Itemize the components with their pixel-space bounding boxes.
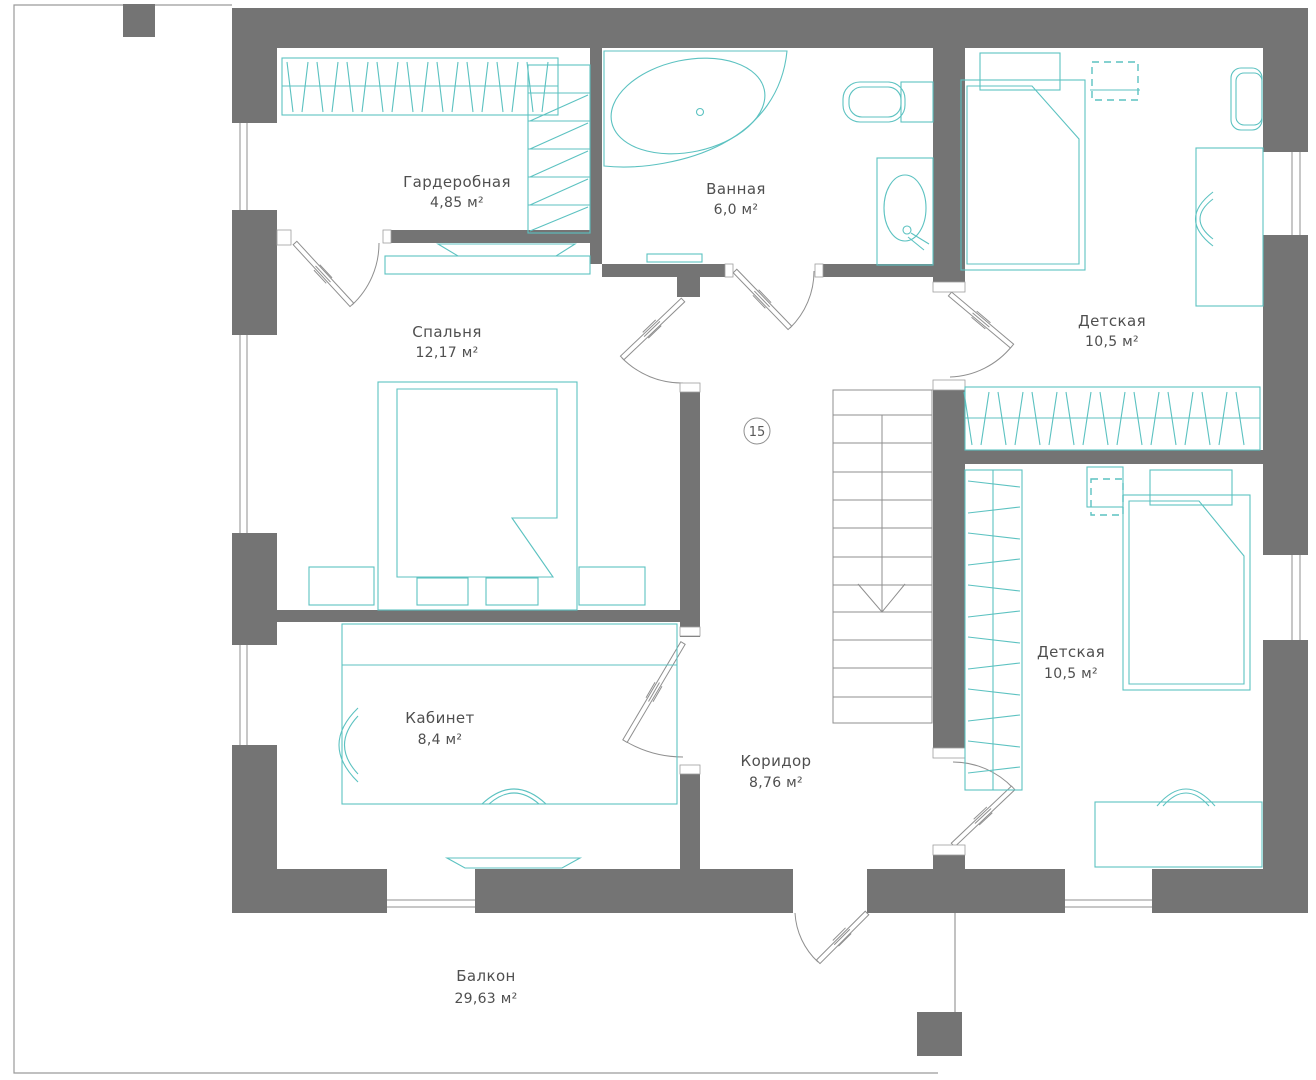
sink-faucet [903, 226, 911, 234]
work-table [342, 624, 677, 804]
door-bedroom [293, 241, 379, 306]
window-right-1 [1292, 152, 1300, 235]
nightstand-dashed [1090, 62, 1140, 100]
door-balcony [795, 911, 869, 963]
closet-band [964, 387, 1260, 450]
svg-text:8,4 м²: 8,4 м² [418, 732, 463, 748]
svg-text:Спальня: Спальня [412, 323, 482, 341]
pillow [417, 578, 468, 605]
window-right-2 [1292, 555, 1300, 640]
door-hall [620, 298, 684, 383]
desk-chair [1196, 192, 1214, 246]
svg-text:Гардеробная: Гардеробная [403, 173, 511, 191]
staircase [833, 390, 932, 723]
svg-text:6,0 м²: 6,0 м² [714, 202, 759, 218]
double-bed [378, 382, 577, 610]
svg-text:Ванная: Ванная [706, 180, 766, 198]
level-marker: 15 [744, 418, 770, 444]
nursery-top-furniture [961, 53, 1263, 306]
window-bottom-1 [387, 900, 475, 907]
pillow [1150, 470, 1232, 505]
bedroom-furniture [309, 244, 645, 610]
svg-text:12,17 м²: 12,17 м² [415, 345, 478, 361]
svg-text:29,63 м²: 29,63 м² [454, 991, 517, 1007]
doors [277, 230, 1015, 964]
bathtub [602, 45, 787, 167]
pillow [980, 53, 1060, 90]
room-label-wardrobe: Гардеробная 4,85 м² [403, 173, 511, 211]
door-office [623, 642, 685, 757]
room-label-balcony: Балкон 29,63 м² [454, 967, 517, 1007]
nightstand-dashed [1087, 467, 1123, 515]
nursery-bottom-furniture [965, 467, 1262, 867]
single-bed [961, 53, 1085, 270]
svg-text:10,5 м²: 10,5 м² [1085, 334, 1139, 350]
single-bed [1123, 470, 1250, 690]
window-sill [447, 858, 580, 868]
shelving-unit [528, 65, 590, 233]
desk [1196, 148, 1263, 306]
window-left-1 [240, 123, 247, 210]
room-label-office: Кабинет 8,4 м² [405, 709, 474, 748]
svg-text:10,5 м²: 10,5 м² [1044, 666, 1098, 682]
svg-text:Кабинет: Кабинет [405, 709, 474, 727]
svg-text:4,85 м²: 4,85 м² [430, 195, 484, 211]
clothes-rail [282, 58, 558, 115]
sink [877, 158, 933, 265]
wardrobe-strip [965, 470, 1022, 790]
room-label-bedroom: Спальня 12,17 м² [412, 323, 482, 361]
hall-closet [385, 244, 590, 274]
svg-text:8,76 м²: 8,76 м² [749, 775, 803, 791]
svg-text:Детская: Детская [1078, 312, 1146, 330]
desk-chair [1157, 789, 1215, 806]
office-furniture [339, 624, 677, 868]
level-marker-value: 15 [749, 425, 766, 440]
door-nursery-bottom [951, 762, 1015, 847]
desk [1095, 802, 1262, 867]
room-label-corridor: Коридор 8,76 м² [741, 752, 812, 791]
bathroom-furniture [602, 45, 933, 265]
office-chair-bottom [482, 789, 546, 804]
svg-text:Балкон: Балкон [456, 967, 516, 985]
window-left-2 [240, 335, 247, 533]
svg-text:Детская: Детская [1037, 643, 1105, 661]
towel-rail [647, 254, 702, 262]
window-bottom-2 [1065, 900, 1152, 907]
window-left-3 [240, 645, 247, 745]
pillow [486, 578, 538, 605]
toilet [843, 82, 933, 122]
door-bathroom [733, 269, 814, 329]
blanket-fold [397, 389, 557, 577]
room-label-nursery-bottom: Детская 10,5 м² [1037, 643, 1105, 682]
bathtub-drain [697, 109, 704, 116]
floor-plan: 15 Гардеробная 4,85 м² Ванная 6,0 м² Спа… [0, 0, 1316, 1080]
floor-plan-drawing: 15 Гардеробная 4,85 м² Ванная 6,0 м² Спа… [0, 0, 1316, 1080]
column-balcony [917, 1012, 962, 1056]
nightstand-right [579, 567, 645, 605]
room-label-nursery-top: Детская 10,5 м² [1078, 312, 1146, 350]
svg-text:Коридор: Коридор [741, 752, 812, 770]
column-top-left [123, 4, 155, 37]
room-label-bathroom: Ванная 6,0 м² [706, 180, 766, 218]
nightstand-left [309, 567, 374, 605]
door-nursery-top [948, 292, 1013, 377]
armchair [1231, 68, 1262, 130]
